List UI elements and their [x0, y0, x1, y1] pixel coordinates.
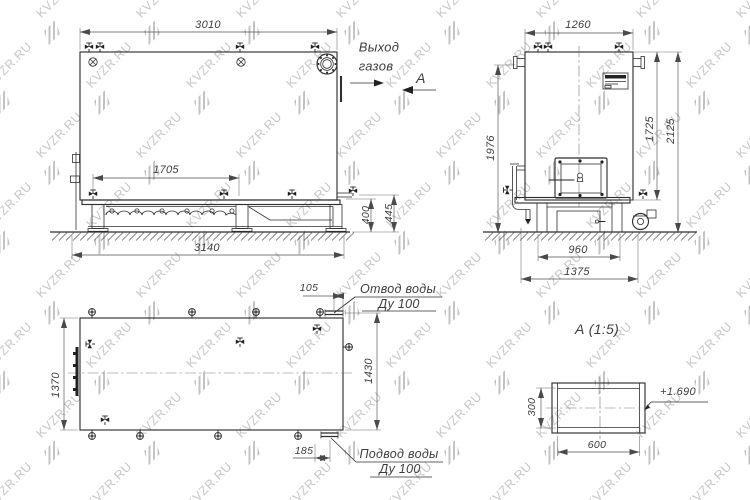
drain-pipe [504, 164, 532, 225]
dim-side-top-width: 3010 [195, 19, 221, 31]
drawing-canvas: KVZR.RUKVZR.RUKVZR.RUKVZR.RUKVZR.RUKVZR.… [0, 0, 750, 500]
dim-plan-width: 1370 [50, 372, 62, 398]
side-base-frame [82, 200, 346, 231]
furnace-door [549, 158, 607, 198]
dim-side-base-height: 400 [360, 206, 372, 224]
dim-plan-inlet-offset: 185 [295, 445, 313, 457]
dim-detail-width: 600 [588, 439, 606, 451]
side-view [50, 28, 399, 259]
label-gas-outlet-2: газов [359, 59, 394, 74]
fan-volute [633, 210, 657, 230]
dim-front-top-width: 1260 [565, 19, 591, 31]
label-section-a: А [416, 70, 426, 86]
label-water-inlet: Подвод воды [359, 447, 438, 461]
label-water-inlet-dn: Ду 100 [379, 462, 420, 476]
dim-front-base-total: 1375 [564, 266, 590, 278]
dim-side-total-height: 445 [383, 204, 395, 222]
front-view [483, 29, 697, 283]
elevation-mark: +1.690 [660, 386, 696, 398]
label-water-outlet: Отвод воды [360, 282, 436, 296]
dim-plan-outlet-offset: 105 [300, 282, 318, 294]
label-water-outlet-dn: Ду 100 [378, 297, 419, 311]
front-base [515, 198, 630, 233]
dim-side-base-width: 3140 [194, 242, 220, 254]
detail-title: А (1:5) [575, 321, 619, 337]
water-inlet-flange [321, 432, 338, 439]
dim-front-height-inner: 1725 [644, 116, 656, 142]
dim-front-height-total: 2125 [665, 118, 677, 144]
drawing-linework [0, 0, 750, 500]
dim-front-height-left: 1976 [485, 135, 497, 161]
dim-side-inner-length: 1705 [153, 164, 179, 176]
dim-front-base-inner: 960 [568, 244, 587, 256]
nameplate [603, 73, 628, 89]
dim-plan-right-span: 1430 [363, 358, 375, 384]
gas-outlet-flange [317, 54, 337, 74]
label-gas-outlet-1: Выход [359, 40, 400, 55]
dim-detail-height: 300 [526, 398, 538, 416]
